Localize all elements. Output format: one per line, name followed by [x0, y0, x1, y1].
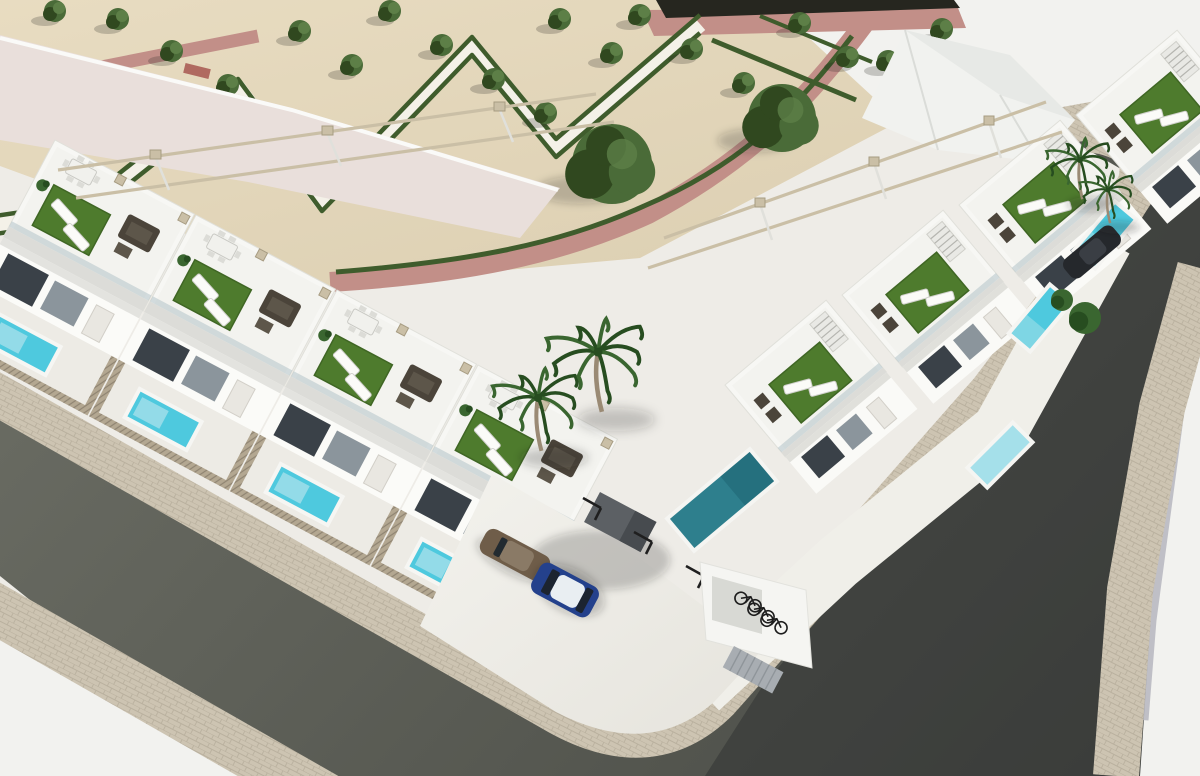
palm-shadow [577, 408, 655, 431]
tree-canopy-light [778, 97, 804, 123]
tree-canopy-light [690, 40, 702, 52]
render-canvas [0, 0, 1200, 776]
tree-canopy-light [798, 14, 810, 26]
shrub-canopy-dark [1069, 312, 1088, 331]
tree-canopy-light [742, 74, 754, 86]
palm-shadow [1096, 221, 1139, 234]
tree-canopy-light [492, 70, 504, 82]
tree-canopy-light [940, 20, 952, 32]
palm-crown [1105, 187, 1110, 192]
shrub-canopy-dark [1051, 296, 1064, 309]
tree-canopy-light [298, 22, 310, 34]
tree-canopy-light [558, 10, 570, 22]
tree-canopy-light [53, 2, 65, 14]
tree-canopy-light [638, 6, 650, 18]
palm-crown [534, 394, 542, 402]
tree-canopy-light [610, 44, 622, 56]
palm-crown [1077, 157, 1083, 163]
render-stage [0, 0, 1200, 776]
tree-canopy-light [350, 56, 362, 68]
tree-canopy-light [388, 2, 400, 14]
shrub [1069, 302, 1101, 334]
palm-shadow [1066, 197, 1117, 212]
tree-canopy-light [846, 48, 858, 60]
palm-crown [593, 347, 602, 356]
tree-canopy-light [607, 139, 637, 169]
shrub [1051, 289, 1073, 311]
tree-canopy-light [226, 76, 238, 88]
palm-shadow [520, 447, 589, 468]
tree-canopy-light [116, 10, 128, 22]
tree-canopy-light [170, 42, 182, 54]
tree-canopy-light [544, 104, 556, 116]
tree-canopy-light [440, 36, 452, 48]
